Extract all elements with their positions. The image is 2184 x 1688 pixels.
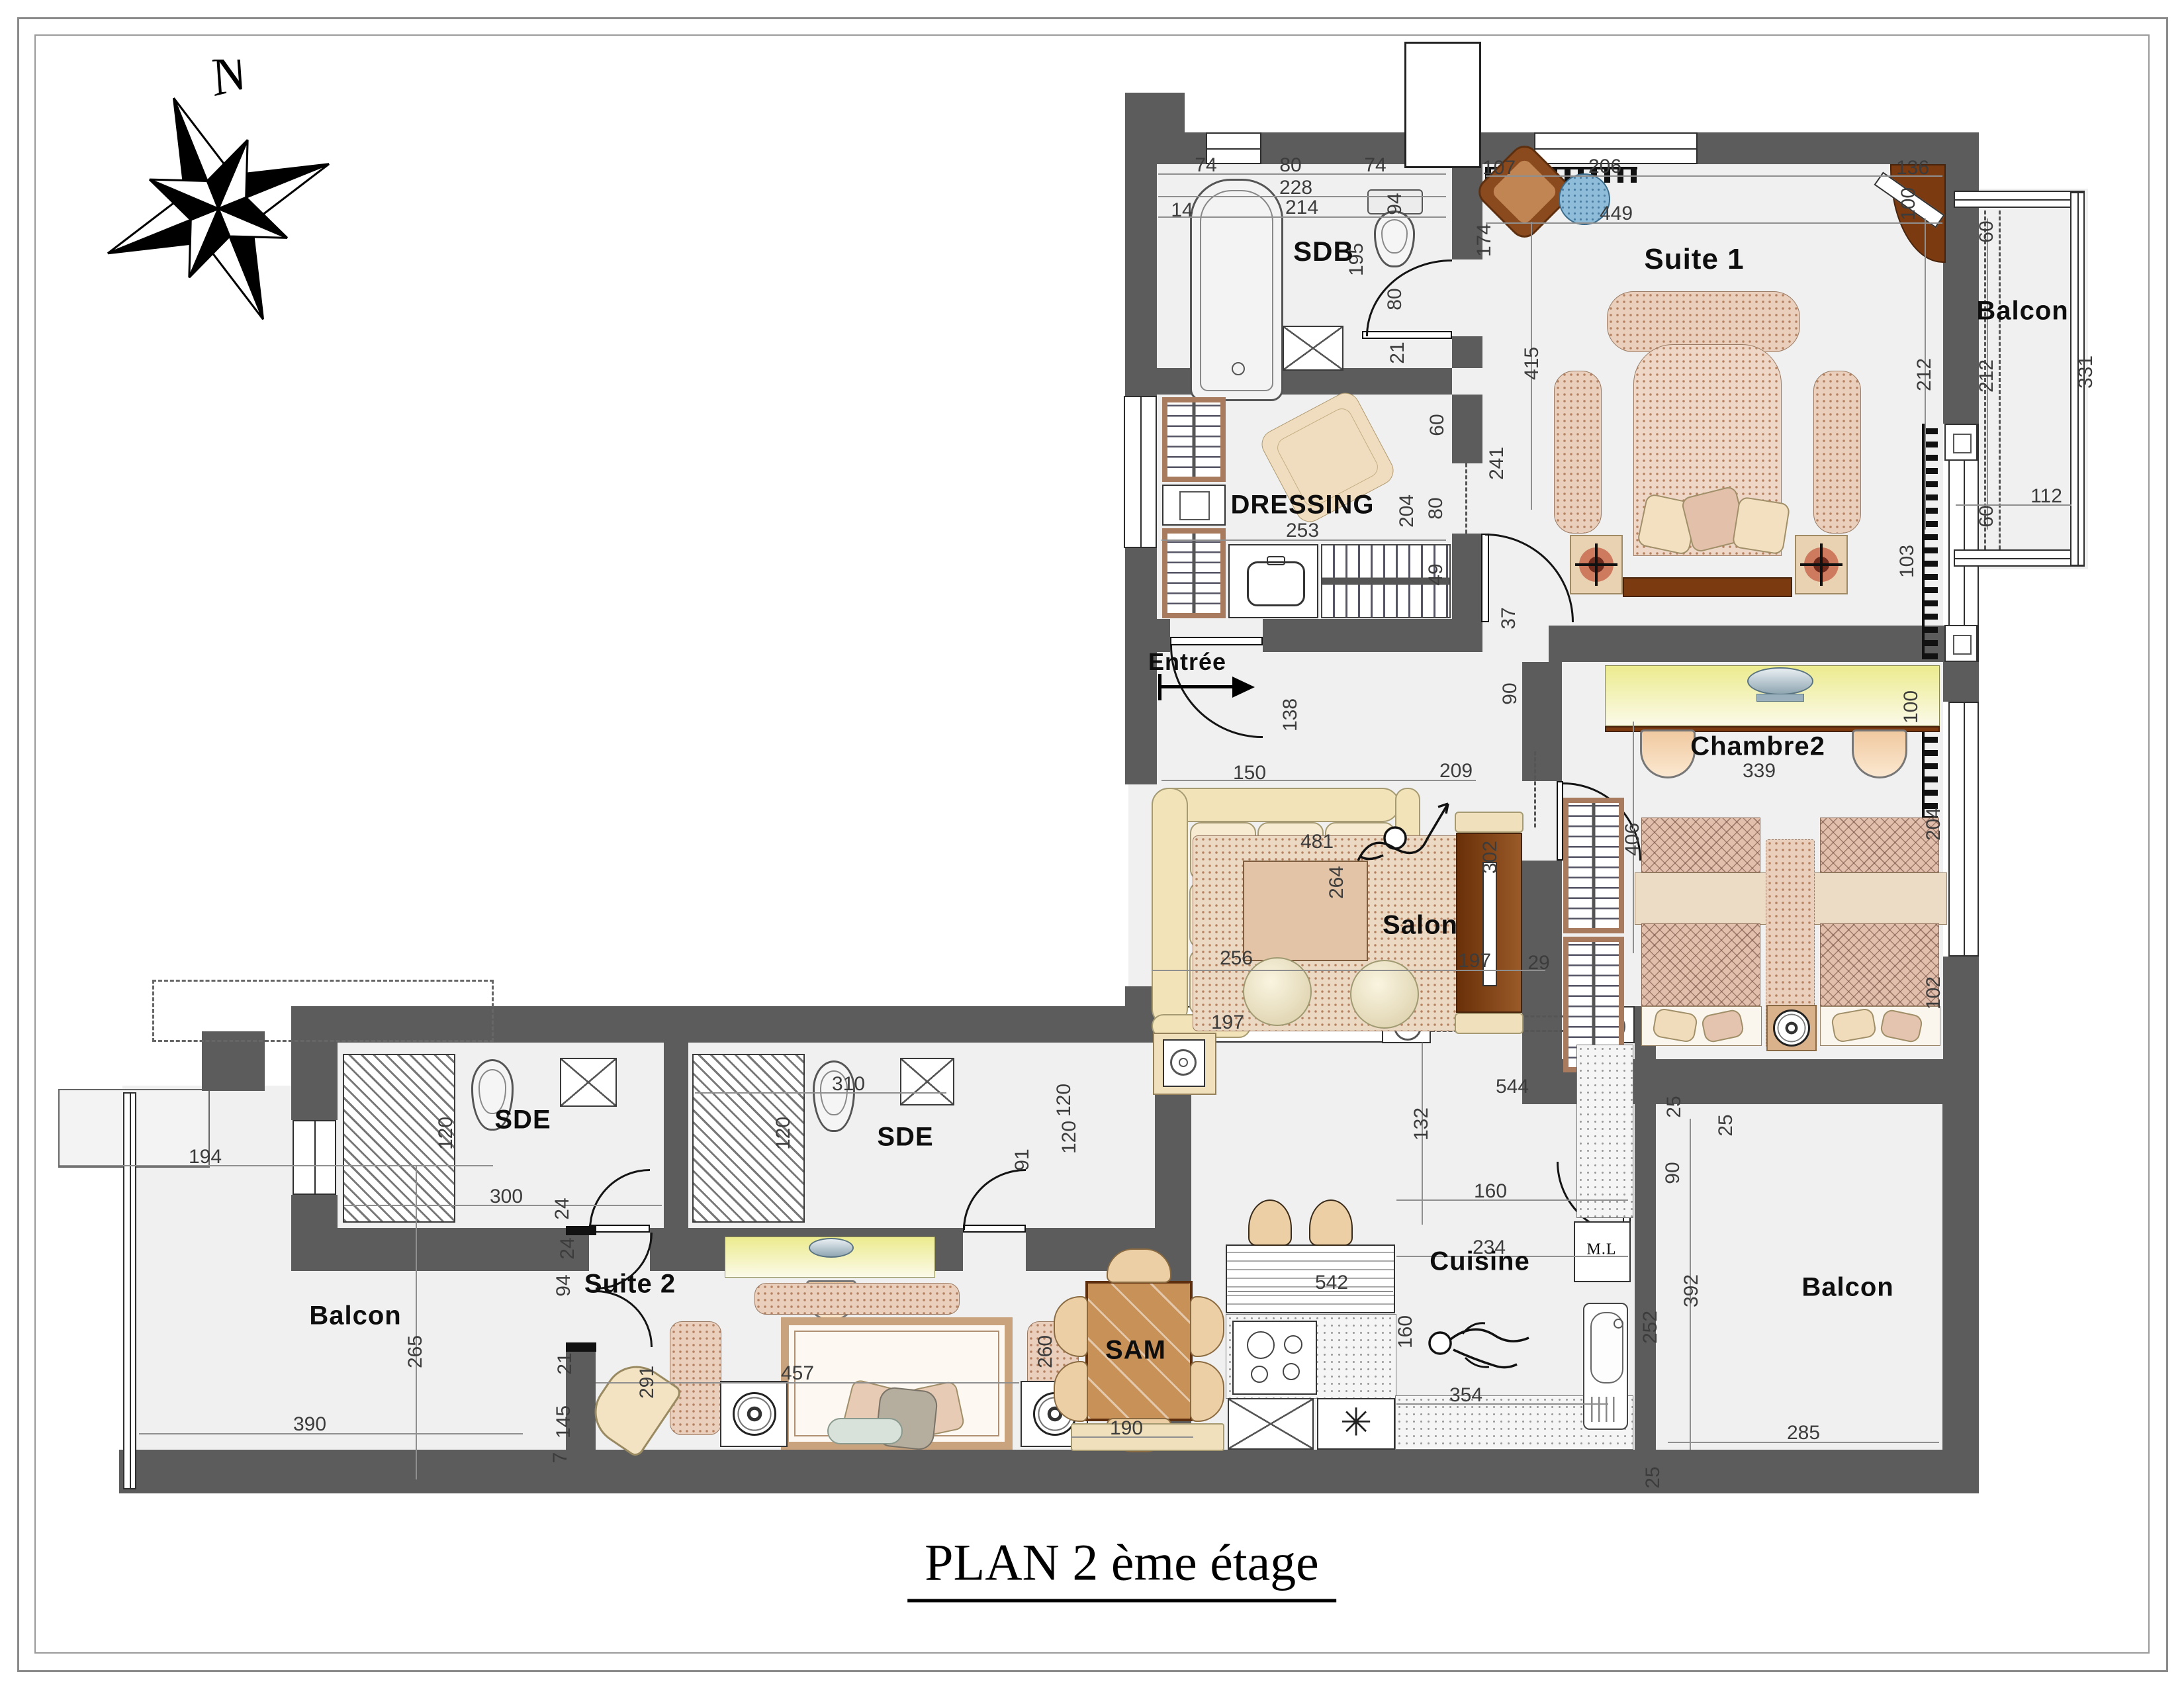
person-cooking-icon bbox=[1423, 1301, 1542, 1387]
dimension-label: 60 bbox=[1976, 220, 1998, 242]
dimension-label: 204 bbox=[1923, 808, 1945, 841]
dimension-label: 120 bbox=[1058, 1121, 1081, 1154]
room-label-sde-left: SDE bbox=[494, 1105, 551, 1135]
dimension-label: 120 bbox=[1053, 1084, 1075, 1117]
dimension-label: 80 bbox=[1279, 154, 1301, 177]
dimension-label: 150 bbox=[1233, 762, 1266, 784]
dimension-label: 415 bbox=[1521, 347, 1543, 380]
dimension-label: 197 bbox=[1211, 1011, 1244, 1034]
dimension-label: 331 bbox=[2075, 355, 2097, 389]
dimension-label: 74 bbox=[1364, 154, 1386, 177]
room-label-suite2: Suite 2 bbox=[584, 1270, 676, 1299]
dimension-label: 228 bbox=[1279, 177, 1312, 199]
dimension-label: 390 bbox=[293, 1413, 326, 1436]
dimension-label: 80 bbox=[1425, 497, 1447, 519]
dimension-label: 90 bbox=[1499, 682, 1522, 704]
dimension-label: 14 bbox=[1171, 199, 1193, 222]
dimension-label: 60 bbox=[1426, 414, 1449, 436]
dimension-label: 120 bbox=[772, 1117, 795, 1150]
dimension-label: 197 bbox=[1458, 950, 1491, 972]
dimension-label: 102 bbox=[1923, 976, 1945, 1009]
dimension-label: 29 bbox=[1527, 952, 1549, 974]
floor-plan-sheet: N bbox=[0, 0, 2184, 1688]
dimension-label: 100 bbox=[1897, 187, 1920, 220]
dimension-label: 112 bbox=[2030, 485, 2062, 508]
room-label-balcon-right: Balcon bbox=[1976, 297, 2068, 326]
room-label-dressing: DRESSING bbox=[1231, 491, 1375, 520]
dimension-label: 209 bbox=[1439, 760, 1473, 782]
dimension-label: 291 bbox=[636, 1366, 659, 1399]
dimension-label: 138 bbox=[1279, 698, 1302, 731]
dimension-label: 24 bbox=[557, 1237, 579, 1259]
dimension-label: 49 bbox=[1425, 563, 1447, 585]
dimension-label: 481 bbox=[1300, 831, 1334, 853]
dimension-label: 91 bbox=[1011, 1149, 1034, 1170]
dimension-label: 212 bbox=[1976, 359, 1998, 393]
dimension-label: 302 bbox=[1479, 841, 1502, 874]
dimension-label: 174 bbox=[1473, 224, 1496, 257]
room-label-entree: Entrée bbox=[1148, 648, 1226, 676]
dimension-label: 80 bbox=[1384, 288, 1406, 310]
compass-rose-icon: N bbox=[79, 60, 357, 344]
dimension-label: 300 bbox=[490, 1186, 523, 1208]
dimension-label: 253 bbox=[1286, 520, 1319, 542]
room-label-sde-mid: SDE bbox=[877, 1123, 933, 1152]
room-label-cuisine: Cuisine bbox=[1430, 1247, 1529, 1277]
room-label-suite1: Suite 1 bbox=[1644, 243, 1744, 276]
dimension-label: 449 bbox=[1600, 203, 1633, 225]
dimension-label: 25 bbox=[1663, 1096, 1686, 1117]
person-reading-icon bbox=[1343, 789, 1469, 888]
dimension-label: 100 bbox=[1900, 690, 1923, 724]
dimension-label: 204 bbox=[1396, 494, 1418, 528]
dimension-label: 160 bbox=[1474, 1180, 1507, 1203]
dimension-label: 94 bbox=[1384, 193, 1406, 214]
dimension-label: 256 bbox=[1220, 947, 1253, 970]
dimension-label: 160 bbox=[1394, 1315, 1417, 1348]
dimension-label: 136 bbox=[1896, 157, 1929, 179]
room-label-balcon-left: Balcon bbox=[309, 1301, 401, 1331]
dimension-label: 94 bbox=[553, 1274, 575, 1296]
dimension-label: 260 bbox=[1034, 1335, 1057, 1368]
dimension-label: 354 bbox=[1449, 1384, 1482, 1407]
dimension-label: 145 bbox=[553, 1405, 575, 1438]
room-label-balcon-br: Balcon bbox=[1801, 1273, 1893, 1303]
room-label-chambre2: Chambre2 bbox=[1690, 732, 1825, 762]
dimension-label: 206 bbox=[1588, 156, 1621, 178]
dimension-label: 241 bbox=[1486, 447, 1508, 480]
room-label-salon: Salon bbox=[1383, 911, 1458, 941]
dimension-label: 7 bbox=[549, 1452, 572, 1464]
dimension-label: 190 bbox=[1110, 1417, 1143, 1440]
dimension-label: 60 bbox=[1976, 505, 1998, 527]
dimension-label: 103 bbox=[1896, 545, 1919, 578]
dimension-label: 21 bbox=[554, 1352, 576, 1374]
dimension-label: 25 bbox=[1715, 1114, 1737, 1136]
compass-north-label: N bbox=[203, 60, 255, 108]
dimension-label: 25 bbox=[1642, 1466, 1664, 1488]
dimension-label: 339 bbox=[1743, 760, 1776, 782]
room-label-sam: SAM bbox=[1105, 1336, 1166, 1366]
dimension-label: 265 bbox=[404, 1335, 427, 1368]
dimension-label: 457 bbox=[781, 1362, 814, 1385]
dimension-label: 37 bbox=[1498, 607, 1520, 629]
dimension-label: 392 bbox=[1680, 1274, 1703, 1307]
dimension-label: 21 bbox=[1387, 342, 1409, 363]
dimension-label: 120 bbox=[435, 1117, 457, 1150]
dimension-label: 194 bbox=[189, 1146, 222, 1168]
dimension-label: 74 bbox=[1195, 154, 1216, 177]
room-label-sdb: SDB bbox=[1293, 236, 1354, 267]
dimension-label: 542 bbox=[1315, 1272, 1348, 1294]
dimension-label: 544 bbox=[1496, 1076, 1529, 1098]
dimension-label: 107 bbox=[1482, 157, 1516, 179]
dimension-label: 264 bbox=[1326, 866, 1348, 899]
dimension-label: 285 bbox=[1787, 1422, 1820, 1444]
dimension-label: 406 bbox=[1621, 823, 1644, 856]
dimension-label: 212 bbox=[1913, 358, 1936, 391]
dimension-label: 310 bbox=[832, 1073, 865, 1096]
dimension-label: 24 bbox=[551, 1197, 574, 1219]
dimension-label: 132 bbox=[1410, 1107, 1433, 1141]
room-label-ml: M.L bbox=[1587, 1241, 1617, 1259]
dimension-label: 214 bbox=[1285, 197, 1318, 219]
dimension-label: 90 bbox=[1662, 1162, 1684, 1184]
dimension-label: 252 bbox=[1639, 1311, 1662, 1344]
